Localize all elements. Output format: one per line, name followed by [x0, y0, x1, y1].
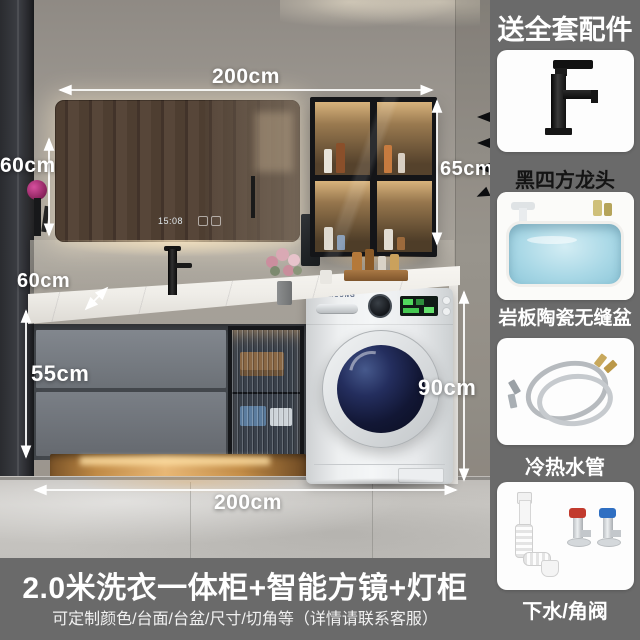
accessory-label-hoses: 冷热水管: [490, 451, 640, 480]
mirror-clock: 15:08: [158, 216, 183, 226]
panel-divider: [306, 324, 453, 325]
accessory-card-basin[interactable]: [497, 192, 634, 300]
fluted-ribs: [232, 330, 300, 454]
dim-counter-depth: 60cm: [17, 271, 70, 291]
display-segment: [416, 299, 424, 305]
accessory-card-faucet[interactable]: [497, 50, 634, 152]
drain-valve-icon: [497, 482, 634, 590]
wall-hook: [477, 138, 490, 148]
accessory-card-hoses[interactable]: [497, 338, 634, 445]
dim-cabinet-height: 65cm: [440, 159, 490, 179]
cabinet-glass-sheen: [310, 97, 437, 257]
hair-dryer-nozzle: [41, 206, 50, 232]
black-square-faucet-icon: [497, 50, 634, 152]
display-segment: [403, 308, 419, 313]
washer-display: [400, 296, 438, 316]
washer-floor-shadow: [300, 478, 460, 492]
title-banner: 2.0米洗衣一体柜+智能方镜+灯柜 可定制颜色/台面/台盆/尺寸/切角等（详情请…: [0, 558, 490, 640]
product-promo-image: 15:08: [0, 0, 640, 640]
accessory-label-faucet: 黑四方龙头: [490, 164, 640, 193]
tray-bottle: [365, 249, 374, 271]
display-segment: [424, 307, 434, 313]
dim-vanity-height: 55cm: [31, 363, 89, 385]
program-knob[interactable]: [368, 294, 392, 318]
storage-cabinet: [310, 97, 437, 257]
wall-corner-shade: [455, 0, 490, 478]
accessory-label-drain: 下水/角阀: [490, 595, 640, 624]
wall-hook: [477, 112, 490, 122]
hair-dryer-holder: [34, 198, 41, 236]
candle-jar: [320, 270, 332, 284]
basin-faucet-spout: [175, 263, 192, 268]
vanity-drawer-bottom: [36, 392, 226, 456]
display-segment: [403, 299, 413, 305]
tray-bottle: [390, 254, 399, 271]
accessory-card-drain[interactable]: [497, 482, 634, 590]
fluted-glass-door: [228, 326, 304, 458]
washer-button[interactable]: [442, 307, 451, 316]
tray-bottle: [352, 252, 362, 271]
led-mirror: 15:08: [55, 100, 300, 242]
dim-mirror-height: 60cm: [0, 155, 56, 176]
flower-leaves: [270, 266, 280, 276]
detergent-drawer-handle[interactable]: [316, 304, 358, 314]
floor-tile-joint: [372, 482, 373, 558]
ceiling-light-glow: [280, 0, 480, 32]
washer-button[interactable]: [442, 296, 451, 305]
kick-line: [314, 464, 445, 465]
wooden-tray: [344, 270, 408, 281]
accessories-header: 送全套配件: [490, 8, 640, 47]
dim-top-width: 200cm: [212, 66, 280, 87]
mirror-reflected-cabinet-glow: [255, 112, 293, 172]
flower-leaves: [293, 266, 302, 275]
mirror-reflected-faucet: [251, 176, 255, 218]
hair-dryer: [27, 180, 47, 200]
dim-bottom-width: 200cm: [214, 492, 282, 513]
seamless-basin-icon: [497, 192, 634, 300]
banner-title: 2.0米洗衣一体柜+智能方镜+灯柜: [0, 563, 490, 607]
accessory-label-basin: 岩板陶瓷无缝盆: [490, 303, 640, 330]
bathroom-photo: 15:08: [0, 0, 490, 558]
flower-vase: [277, 281, 292, 305]
mirror-touch-icon[interactable]: [198, 216, 208, 226]
basin-faucet-body: [168, 249, 177, 295]
water-hoses-icon: [497, 338, 634, 445]
mirror-touch-icon[interactable]: [211, 216, 221, 226]
cabinet-under-glow: [320, 256, 430, 270]
banner-subtitle: 可定制颜色/台面/台盆/尺寸/切角等（详情请联系客服）: [0, 605, 490, 629]
tray-bottle: [378, 256, 386, 271]
plinth-glow-core: [80, 457, 270, 465]
dim-washer-height: 90cm: [418, 377, 476, 399]
